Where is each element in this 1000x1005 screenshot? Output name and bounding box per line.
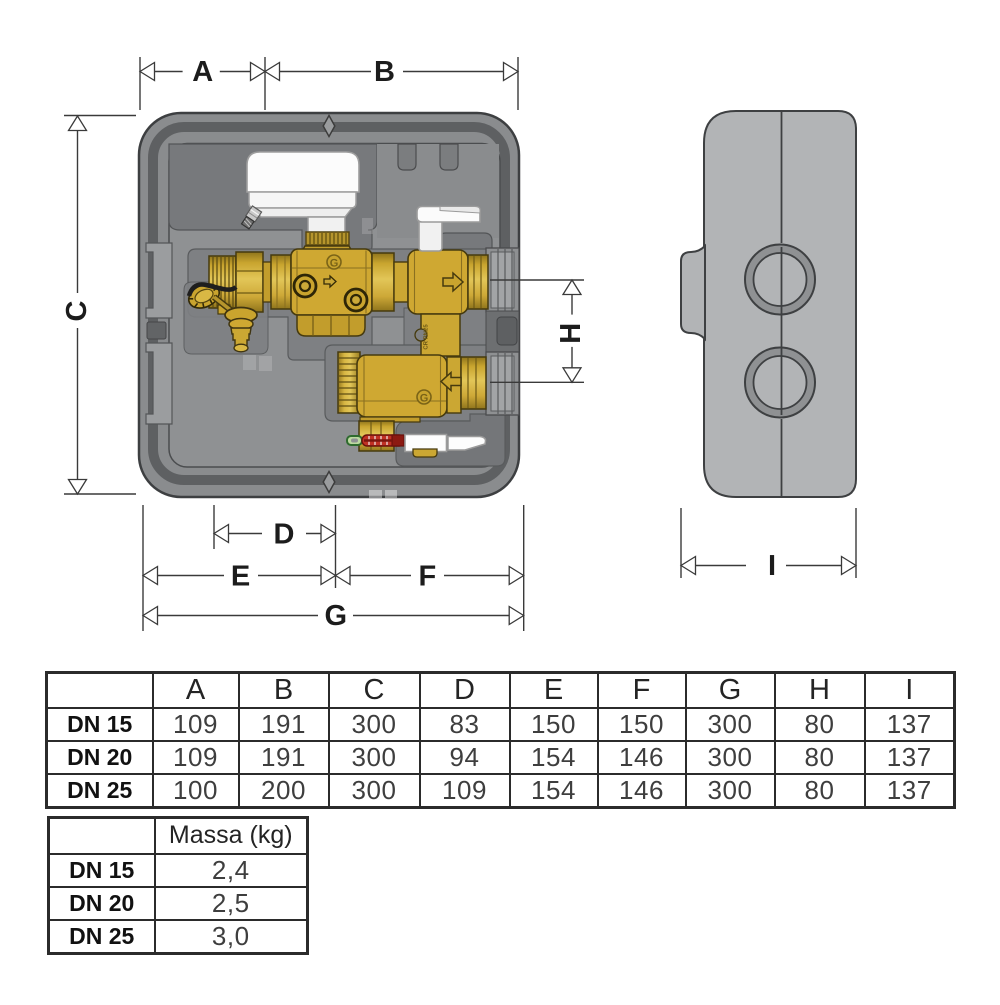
svg-text:B: B (374, 56, 395, 88)
svg-text:I: I (768, 550, 776, 582)
svg-text:CR PN25: CR PN25 (423, 324, 430, 350)
svg-text:E: E (231, 560, 250, 592)
svg-text:H: H (555, 323, 587, 344)
svg-text:A: A (192, 56, 213, 88)
svg-text:G: G (330, 258, 339, 270)
svg-text:D: D (274, 518, 295, 550)
svg-text:G: G (420, 393, 429, 405)
svg-text:G: G (325, 600, 348, 632)
svg-text:C: C (61, 300, 93, 321)
svg-text:F: F (418, 560, 436, 592)
